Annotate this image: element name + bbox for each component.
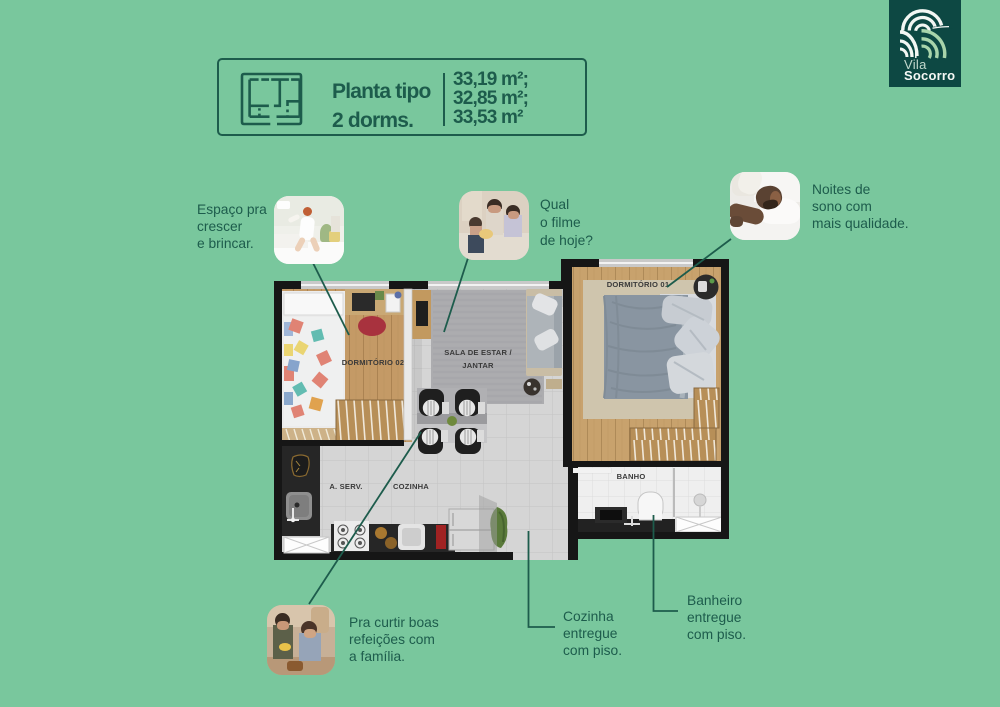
svg-text:JANTAR: JANTAR	[462, 361, 494, 370]
svg-text:A. SERV.: A. SERV.	[329, 482, 362, 491]
svg-text:COZINHA: COZINHA	[393, 482, 429, 491]
svg-text:SALA DE ESTAR /: SALA DE ESTAR /	[444, 348, 512, 357]
svg-text:DORMITÓRIO 01: DORMITÓRIO 01	[607, 280, 670, 289]
svg-text:DORMITÓRIO 02: DORMITÓRIO 02	[342, 358, 405, 367]
svg-text:BANHO: BANHO	[617, 472, 646, 481]
